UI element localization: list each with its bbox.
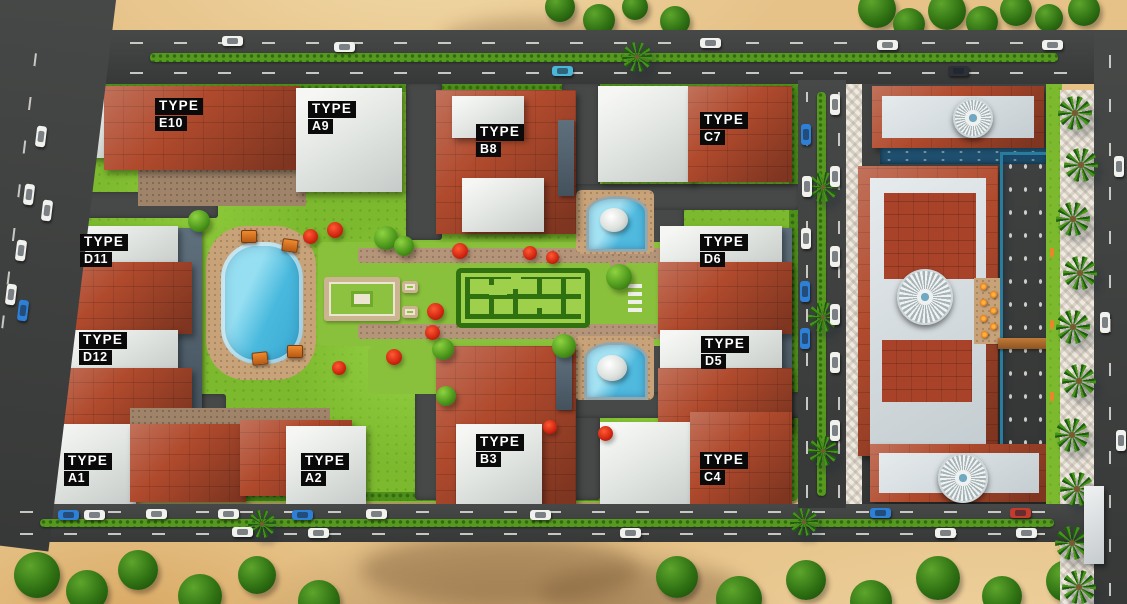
desert-tree <box>982 576 1022 604</box>
label-code: A1 <box>64 471 89 487</box>
zebra-crossing <box>628 284 642 312</box>
label-prefix: TYPE <box>476 124 524 141</box>
spiral-dome-central <box>897 269 953 325</box>
palm-tree <box>1063 256 1097 290</box>
building-label-a2[interactable]: TYPE A2 <box>301 453 349 486</box>
hedge-maze <box>456 268 590 328</box>
sun-lounger <box>1050 248 1054 257</box>
label-prefix: TYPE <box>80 234 128 251</box>
desert-tree <box>118 550 158 590</box>
label-code: A9 <box>308 119 333 135</box>
label-prefix: TYPE <box>701 336 749 353</box>
garden-basin-green <box>405 309 415 315</box>
car <box>700 38 721 48</box>
desert-tree <box>66 570 108 604</box>
red-bush <box>546 251 559 264</box>
garden-basin <box>402 281 418 293</box>
pool-cabana <box>241 230 257 243</box>
building-b8-facade <box>558 120 574 196</box>
desert-tree <box>238 556 276 594</box>
desert-tree <box>916 556 960 600</box>
building-label-a1[interactable]: TYPE A1 <box>64 453 112 486</box>
building-c7-core[interactable] <box>598 86 694 182</box>
car <box>232 527 253 537</box>
red-bush <box>452 243 468 259</box>
car <box>1116 430 1126 451</box>
palm-tree <box>622 42 652 72</box>
car <box>84 510 105 520</box>
pool-cabana <box>281 238 299 253</box>
car <box>830 166 840 187</box>
car <box>334 42 355 52</box>
garden-tree <box>188 210 210 232</box>
desert-tree <box>1035 4 1063 32</box>
clubhouse-tiled-roof-lower <box>882 340 972 402</box>
garden-basin <box>402 306 418 318</box>
clubhouse-tiled-roof-upper <box>884 193 976 279</box>
building-label-d12[interactable]: TYPE D12 <box>79 332 127 365</box>
car <box>146 509 167 519</box>
label-prefix: TYPE <box>64 453 112 470</box>
garden-basin-green <box>405 284 415 290</box>
label-prefix: TYPE <box>476 434 524 451</box>
car <box>877 40 898 50</box>
car <box>802 176 812 197</box>
label-code: B8 <box>476 142 501 158</box>
masterplan-scene: TYPE E10 TYPE A9 TYPE B8 TYPE C7 TYPE D1… <box>0 0 1127 604</box>
lap-pool <box>1000 152 1052 492</box>
building-label-c4[interactable]: TYPE C4 <box>700 452 748 485</box>
label-prefix: TYPE <box>700 112 748 129</box>
building-label-b3[interactable]: TYPE B3 <box>476 434 524 467</box>
palm-tree <box>1058 96 1092 130</box>
label-prefix: TYPE <box>79 332 127 349</box>
building-a1-roof[interactable] <box>130 424 246 502</box>
palm-tree <box>790 508 818 536</box>
car <box>830 246 840 267</box>
label-code: D12 <box>79 350 112 366</box>
median-north <box>150 53 1058 62</box>
car <box>1100 312 1110 333</box>
car <box>801 124 811 145</box>
desert-tree <box>14 552 60 598</box>
car <box>830 420 840 441</box>
red-bush <box>303 229 318 244</box>
building-d6-roof[interactable] <box>658 262 792 334</box>
desert-tree <box>1068 0 1100 26</box>
desert-tree <box>858 0 896 28</box>
fountain-south-dome <box>597 355 627 381</box>
car <box>800 328 810 349</box>
lounge-terrace <box>974 278 1002 344</box>
car <box>830 94 840 115</box>
label-code: C7 <box>700 130 725 146</box>
car <box>218 509 239 519</box>
building-b8-south[interactable] <box>462 178 544 232</box>
label-prefix: TYPE <box>700 452 748 469</box>
car <box>620 528 641 538</box>
garden-tree <box>436 386 456 406</box>
car <box>366 509 387 519</box>
car <box>292 510 313 520</box>
label-code: C4 <box>700 470 725 486</box>
sun-lounger <box>1050 320 1054 329</box>
red-bush <box>427 303 444 320</box>
desert-tree <box>928 0 966 30</box>
car <box>801 228 811 249</box>
car <box>830 352 840 373</box>
label-code: A2 <box>301 471 326 487</box>
median-south <box>40 519 1054 527</box>
guard-kiosk <box>1084 486 1104 564</box>
sun-lounger <box>1050 392 1054 401</box>
building-label-d11[interactable]: TYPE D11 <box>80 234 128 267</box>
building-label-d6[interactable]: TYPE D6 <box>700 234 748 267</box>
red-bush <box>543 420 557 434</box>
car <box>870 508 891 518</box>
palm-tree <box>1064 148 1098 182</box>
umbrella <box>990 291 997 298</box>
car <box>58 510 79 520</box>
umbrella <box>990 307 997 314</box>
maze-gap <box>533 299 555 308</box>
palm-tree <box>1062 364 1096 398</box>
spiral-dome-north <box>953 98 993 138</box>
palm-tree <box>1062 570 1096 604</box>
label-prefix: TYPE <box>700 234 748 251</box>
garden-tree <box>432 338 454 360</box>
garden-tree <box>606 264 632 290</box>
label-prefix: TYPE <box>308 101 356 118</box>
lane-marking <box>20 533 1070 535</box>
building-b3-facade <box>556 352 572 410</box>
formal-garden <box>324 277 400 321</box>
pool-bridge <box>998 338 1048 349</box>
umbrella <box>990 323 997 330</box>
palm-tree <box>1056 202 1090 236</box>
umbrella <box>981 331 988 338</box>
spiral-dome-south <box>938 453 988 503</box>
red-bush <box>327 222 343 238</box>
maze-gap <box>511 275 521 289</box>
maze-gap <box>489 285 507 295</box>
maze-walls <box>465 277 581 319</box>
pool-cabana <box>287 345 303 358</box>
desert-tree <box>786 560 826 600</box>
car <box>552 66 573 76</box>
label-code: B3 <box>476 452 501 468</box>
desert-tree <box>622 0 648 20</box>
car <box>935 528 956 538</box>
red-bush <box>598 426 613 441</box>
umbrella <box>980 315 987 322</box>
building-label-e10[interactable]: TYPE E10 <box>155 98 203 131</box>
car <box>530 510 551 520</box>
label-code: D5 <box>701 354 726 370</box>
red-bush <box>332 361 346 375</box>
red-bush <box>425 325 440 340</box>
fountain-north-dome <box>600 208 628 232</box>
desert-tree <box>298 580 340 604</box>
car <box>800 281 810 302</box>
palm-tree <box>1055 418 1089 452</box>
pool-cabana <box>251 351 268 366</box>
car <box>308 528 329 538</box>
lane-marking <box>130 72 1070 74</box>
car <box>1010 508 1031 518</box>
desert-tree <box>656 556 698 598</box>
car <box>830 304 840 325</box>
red-bush <box>386 349 402 365</box>
palm-tree <box>1056 310 1090 344</box>
car <box>1114 156 1124 177</box>
desert-tree <box>178 574 222 604</box>
garden-tree <box>552 334 576 358</box>
car <box>222 36 243 46</box>
label-code: D6 <box>700 252 725 268</box>
car <box>1042 40 1063 50</box>
car <box>948 66 969 76</box>
umbrella <box>980 299 987 306</box>
desert-tree <box>850 580 892 604</box>
label-code: E10 <box>155 116 187 132</box>
label-prefix: TYPE <box>301 453 349 470</box>
building-label-d5[interactable]: TYPE D5 <box>701 336 749 369</box>
car <box>1016 528 1037 538</box>
lane-marking <box>130 42 1060 44</box>
formal-garden-center <box>351 291 373 307</box>
label-code: D11 <box>80 252 112 268</box>
label-prefix: TYPE <box>155 98 203 115</box>
red-bush <box>523 246 537 260</box>
building-label-a9[interactable]: TYPE A9 <box>308 101 356 134</box>
desert-tree <box>1000 0 1032 26</box>
building-label-b8[interactable]: TYPE B8 <box>476 124 524 157</box>
lane-marking <box>0 26 40 503</box>
garden-tree <box>394 236 414 256</box>
umbrella <box>980 283 987 290</box>
building-label-c7[interactable]: TYPE C7 <box>700 112 748 145</box>
